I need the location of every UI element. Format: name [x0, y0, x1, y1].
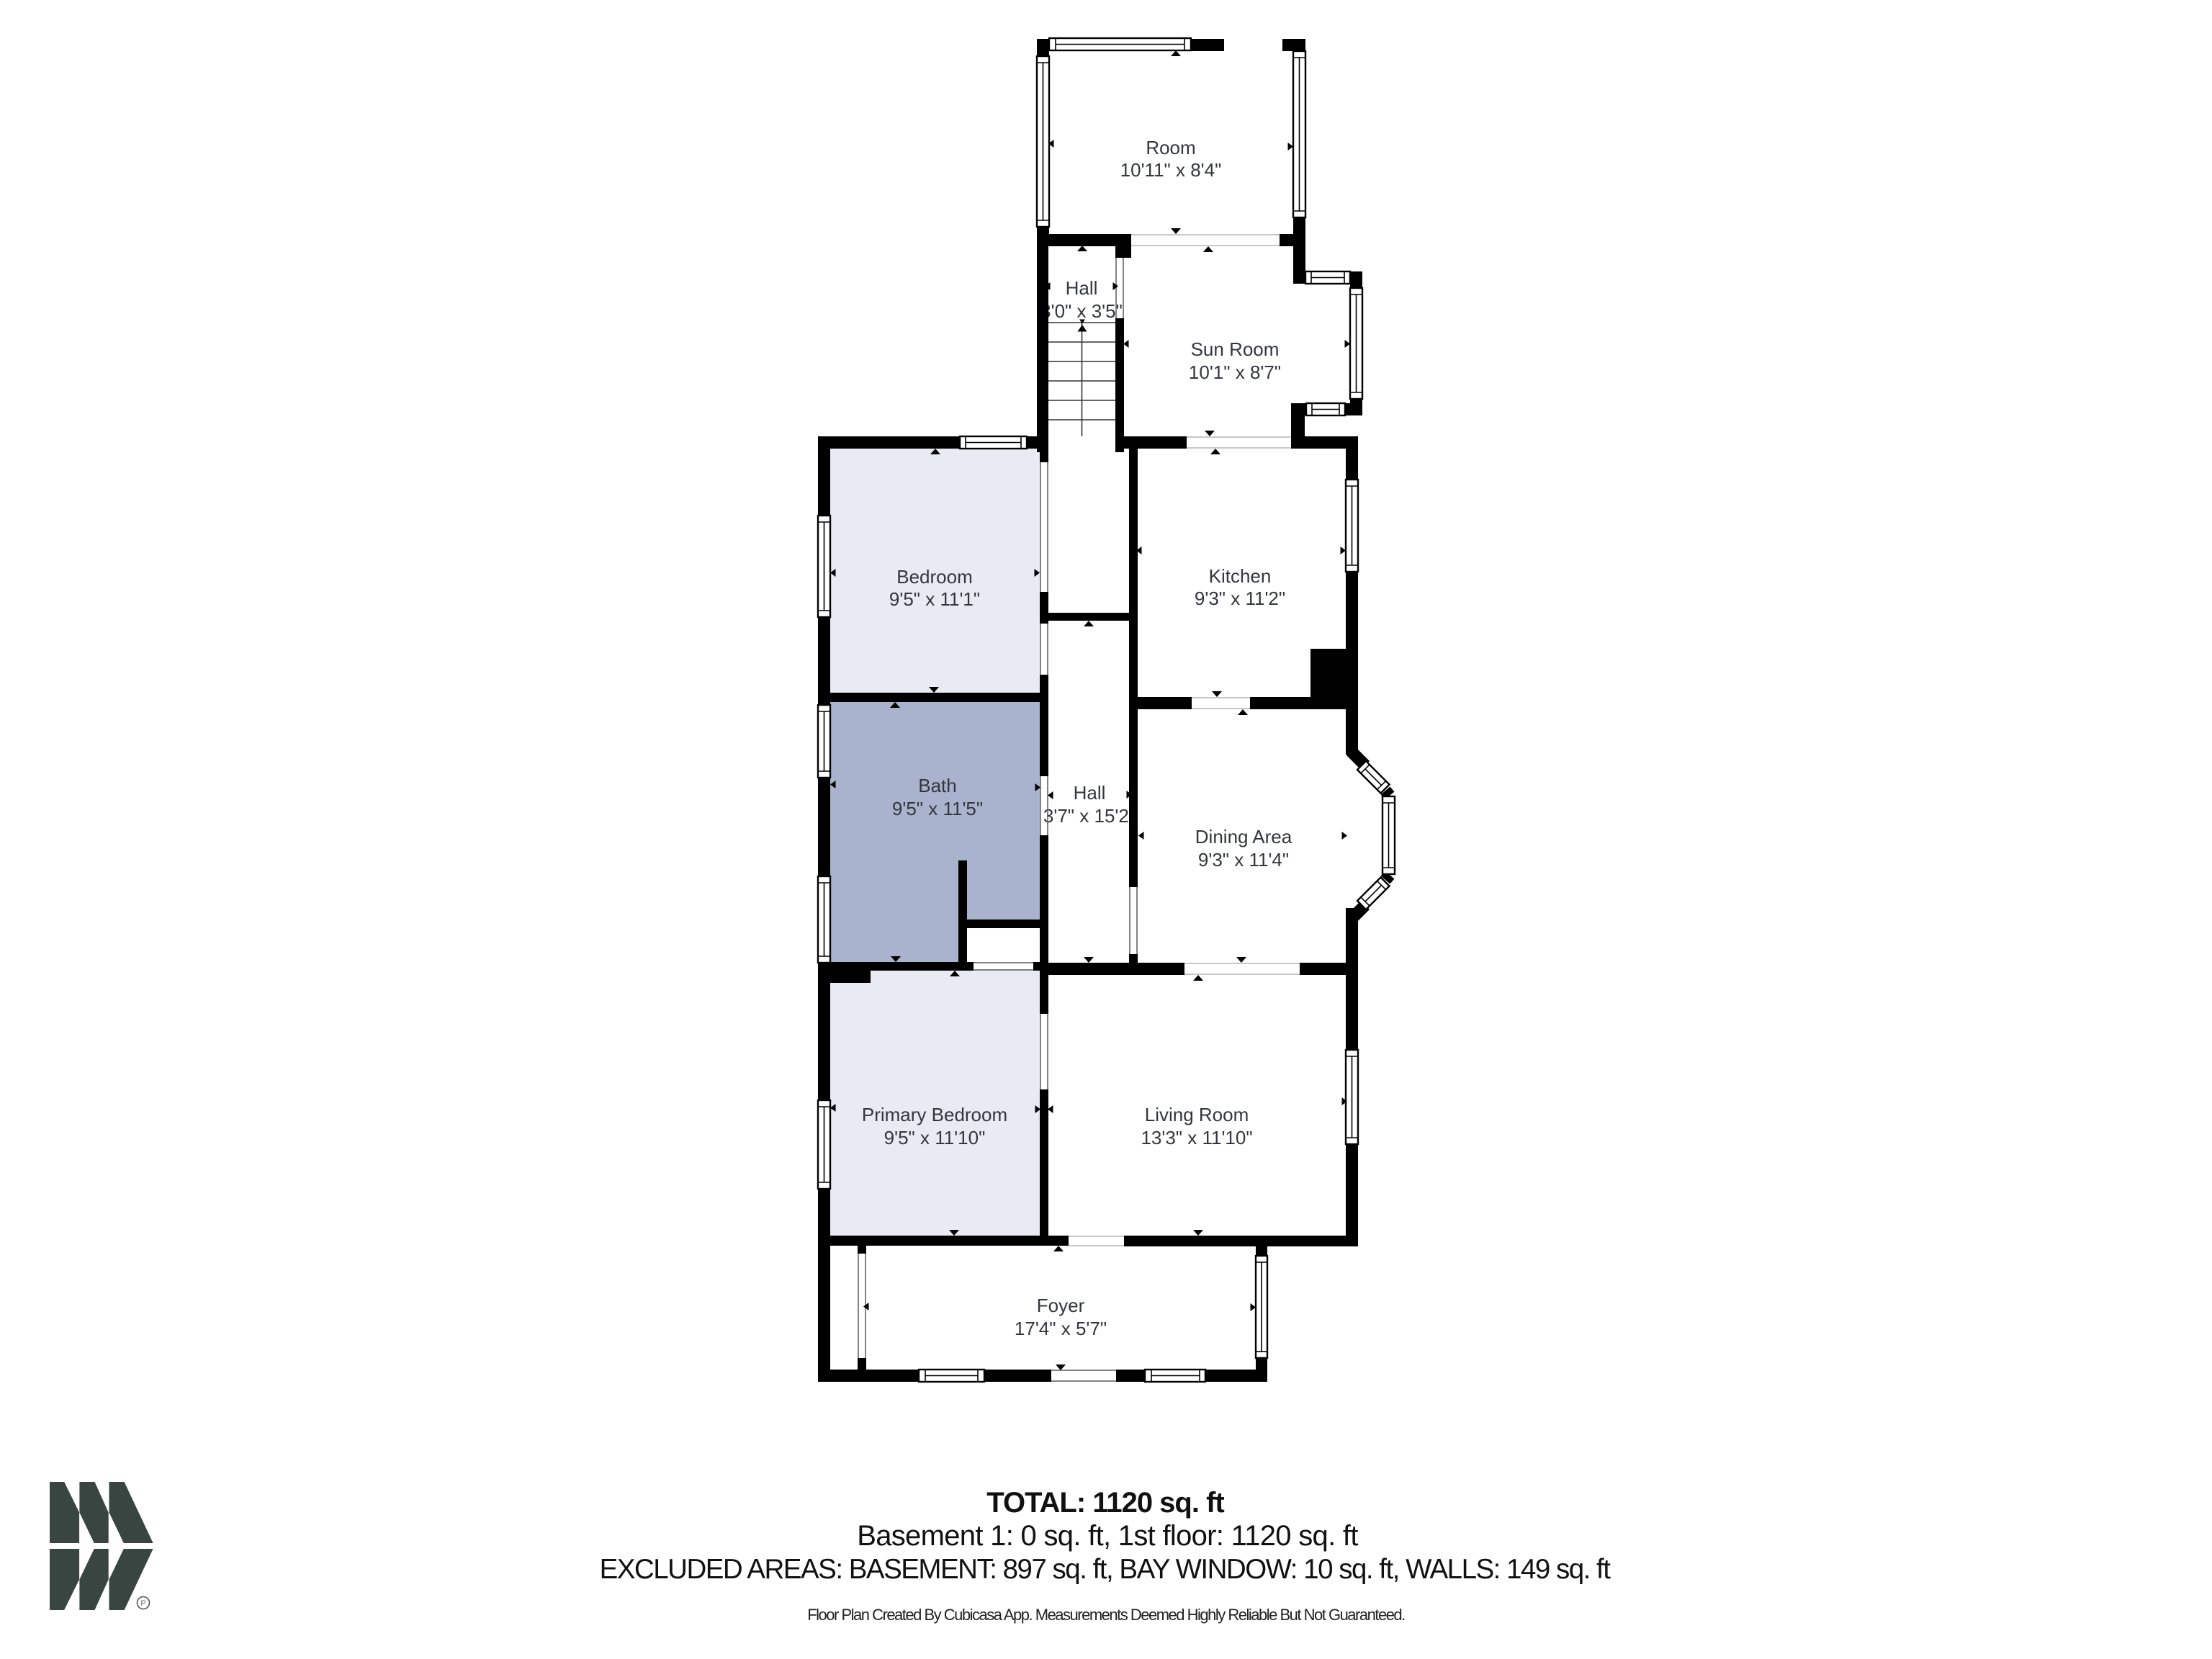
svg-text:9'5" x 11'5": 9'5" x 11'5": [892, 798, 983, 819]
svg-text:Dining Area: Dining Area: [1195, 826, 1292, 848]
svg-text:Hall: Hall: [1074, 782, 1106, 804]
svg-text:10'11" x 8'4": 10'11" x 8'4": [1120, 159, 1222, 181]
svg-text:13'3" x 11'10": 13'3" x 11'10": [1141, 1127, 1252, 1148]
svg-text:9'5" x 11'1": 9'5" x 11'1": [889, 588, 980, 610]
svg-text:Bedroom: Bedroom: [896, 566, 973, 588]
svg-text:9'3" x 11'4": 9'3" x 11'4": [1198, 849, 1289, 871]
svg-text:P: P: [140, 1599, 145, 1608]
svg-text:Room: Room: [1146, 137, 1195, 158]
svg-text:TOTAL: 1120 sq. ft: TOTAL: 1120 sq. ft: [986, 1487, 1224, 1519]
svg-text:9'5" x 11'10": 9'5" x 11'10": [884, 1127, 986, 1148]
svg-text:Basement 1: 0 sq. ft, 1st floo: Basement 1: 0 sq. ft, 1st floor: 1120 sq…: [857, 1520, 1358, 1552]
svg-text:Hall: Hall: [1066, 277, 1098, 299]
svg-text:Kitchen: Kitchen: [1209, 565, 1272, 587]
svg-text:Floor Plan Created By Cubicasa: Floor Plan Created By Cubicasa App. Meas…: [807, 1606, 1405, 1624]
svg-text:Living Room: Living Room: [1145, 1104, 1249, 1125]
svg-text:3'7" x 15'2": 3'7" x 15'2": [1043, 805, 1136, 827]
svg-text:EXCLUDED AREAS: BASEMENT: 897: EXCLUDED AREAS: BASEMENT: 897 sq. ft, BA…: [600, 1554, 1611, 1585]
svg-text:9'3" x 11'2": 9'3" x 11'2": [1195, 588, 1285, 609]
svg-text:Foyer: Foyer: [1037, 1295, 1085, 1316]
svg-text:Sun Room: Sun Room: [1191, 338, 1280, 360]
svg-text:10'1" x 8'7": 10'1" x 8'7": [1189, 361, 1281, 383]
svg-text:17'4" x 5'7": 17'4" x 5'7": [1015, 1318, 1107, 1339]
svg-text:Bath: Bath: [918, 775, 957, 796]
svg-text:Primary Bedroom: Primary Bedroom: [862, 1104, 1007, 1125]
svg-text:3'0" x 3'5": 3'0" x 3'5": [1040, 300, 1123, 322]
